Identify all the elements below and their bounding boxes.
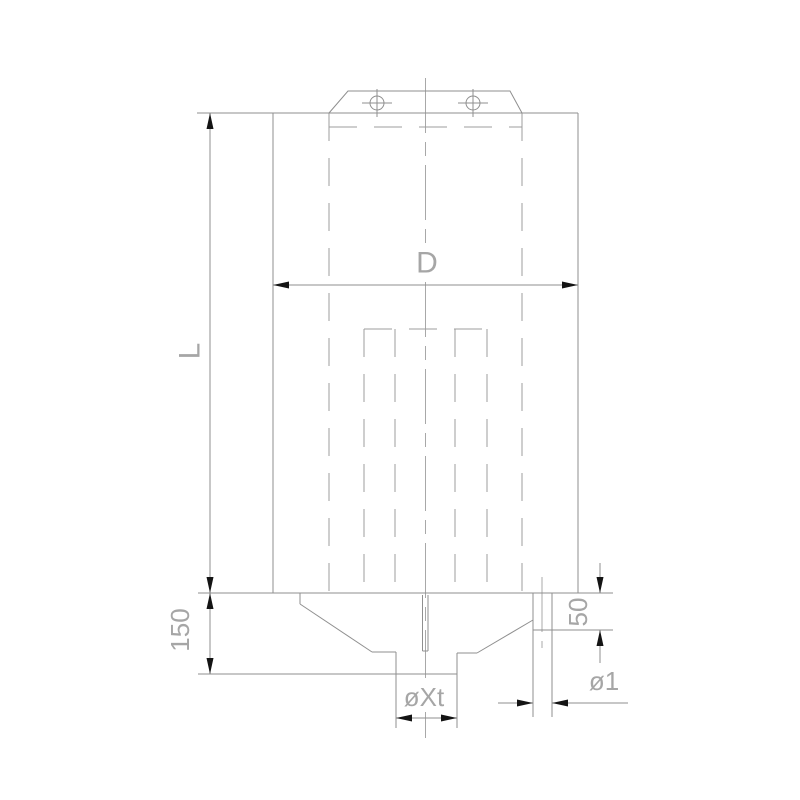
dim-label-outlet-diameter: ø1 — [589, 666, 619, 696]
dimension-L: L — [174, 113, 214, 593]
dimension-spout-diameter: øXt — [396, 682, 457, 722]
arrowhead-right — [562, 282, 578, 289]
dim-label-L: L — [174, 343, 207, 360]
dimension-outlet-diameter: ø1 — [498, 666, 628, 707]
arrowhead-right-pointing — [517, 700, 533, 707]
dim-label-D: D — [416, 247, 438, 280]
dim-label-150: 150 — [165, 608, 195, 651]
funnel-left-slant — [300, 604, 372, 652]
funnel-right-slant — [477, 620, 533, 653]
arrowhead-left — [396, 715, 412, 722]
arrowhead-up — [597, 630, 604, 646]
dim-label-spout-diameter: øXt — [404, 682, 445, 712]
arrowhead-down — [597, 577, 604, 593]
vessel-body — [197, 113, 613, 593]
dimension-150: 150 — [165, 593, 214, 674]
arrowhead-left — [273, 282, 289, 289]
drawing-canvas: L D 150 50 øXt ø1 — [0, 0, 800, 800]
dimension-50: 50 — [563, 563, 604, 663]
arrowhead-down — [207, 658, 214, 674]
arrowhead-right — [441, 715, 457, 722]
arrowhead-up — [207, 593, 214, 609]
center-lines — [426, 78, 543, 738]
dim-label-50: 50 — [563, 598, 593, 627]
arrowhead-down — [207, 577, 214, 593]
technical-drawing: L D 150 50 øXt ø1 — [0, 0, 800, 800]
arrowhead-up — [207, 113, 214, 129]
bottom-funnel — [198, 593, 533, 728]
arrowhead-left-pointing — [552, 700, 568, 707]
